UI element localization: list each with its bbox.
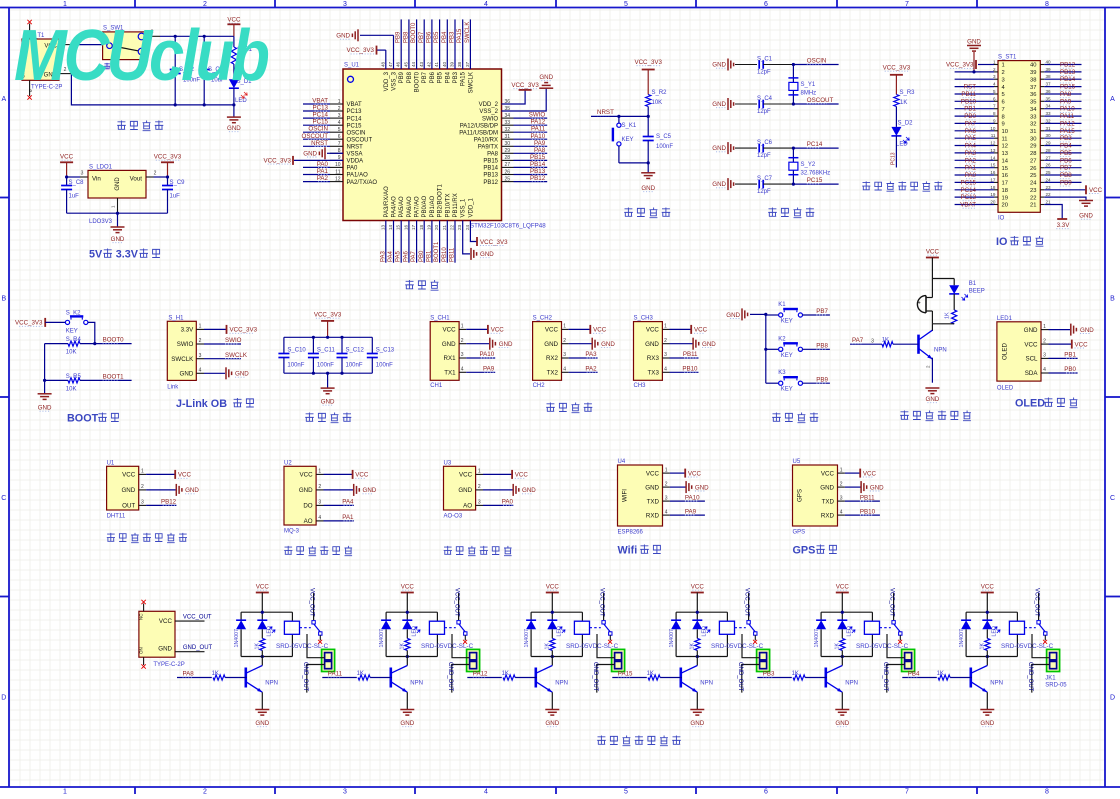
svg-text:S_Y2: S_Y2 [801, 162, 816, 168]
svg-text:32: 32 [1030, 122, 1036, 128]
svg-text:3.3V: 3.3V [116, 249, 139, 261]
svg-text:40: 40 [1030, 63, 1036, 69]
svg-text:46: 46 [396, 61, 401, 67]
svg-text:VCC_OUT: VCC_OUT [889, 588, 895, 617]
svg-text:1: 1 [478, 469, 481, 475]
svg-text:3: 3 [993, 74, 996, 79]
svg-text:22: 22 [450, 224, 455, 230]
svg-text:Wifi: Wifi [618, 545, 638, 557]
svg-text:PB7: PB7 [419, 31, 425, 43]
svg-text:40: 40 [442, 61, 447, 67]
svg-text:PA2: PA2 [965, 157, 977, 164]
svg-text:VCC_3V3: VCC_3V3 [263, 157, 291, 164]
svg-text:3: 3 [840, 495, 843, 501]
svg-text:1K: 1K [690, 643, 696, 650]
svg-text:NPN: NPN [700, 681, 713, 687]
svg-text:PB6: PB6 [430, 71, 436, 83]
svg-text:PB8: PB8 [407, 71, 413, 83]
svg-text:1K: 1K [400, 643, 406, 650]
svg-text:20: 20 [434, 224, 439, 230]
svg-text:5: 5 [624, 1, 628, 8]
svg-text:PA2: PA2 [585, 366, 597, 373]
svg-text:PB12: PB12 [1060, 62, 1076, 69]
svg-text:U1: U1 [107, 460, 115, 466]
svg-text:19: 19 [426, 224, 431, 230]
svg-text:PC14: PC14 [807, 141, 823, 148]
svg-text:6: 6 [764, 1, 768, 8]
svg-text:GND: GND [522, 487, 536, 494]
svg-text:PA12: PA12 [1060, 120, 1075, 127]
svg-text:S_R4: S_R4 [66, 337, 82, 343]
svg-text:30: 30 [1030, 136, 1036, 142]
svg-text:4: 4 [840, 509, 843, 515]
svg-text:32.768KHz: 32.768KHz [801, 170, 831, 176]
svg-text:PB12: PB12 [161, 499, 177, 506]
svg-text:VCC: VCC [443, 327, 457, 334]
svg-text:GND_OUT: GND_OUT [302, 662, 308, 692]
svg-text:3: 3 [1002, 77, 1005, 83]
svg-text:K2: K2 [778, 336, 786, 342]
svg-text:PA11: PA11 [531, 126, 546, 133]
svg-text:36: 36 [1030, 92, 1036, 98]
svg-text:SWCLK: SWCLK [225, 352, 248, 359]
svg-text:VCC_OUT: VCC_OUT [599, 588, 605, 617]
svg-text:PB13: PB13 [530, 168, 546, 175]
svg-text:3: 3 [199, 353, 202, 359]
svg-text:3: 3 [871, 338, 874, 344]
svg-text:3: 3 [343, 788, 347, 794]
svg-text:6: 6 [1002, 100, 1005, 106]
svg-text:42: 42 [426, 61, 431, 67]
svg-text:PC15: PC15 [961, 179, 977, 186]
svg-text:PA0: PA0 [502, 499, 514, 506]
svg-text:3: 3 [665, 495, 668, 501]
svg-text:PB5: PB5 [1060, 150, 1072, 157]
svg-text:PB7: PB7 [816, 308, 828, 315]
svg-text:GND: GND [1024, 327, 1038, 334]
svg-text:PA2/TX/AO: PA2/TX/AO [347, 180, 378, 186]
svg-text:PC15: PC15 [347, 123, 363, 129]
svg-text:VBAT: VBAT [312, 98, 328, 105]
svg-text:15: 15 [396, 224, 401, 230]
svg-text:PB8: PB8 [816, 343, 828, 350]
svg-text:GND: GND [726, 312, 740, 319]
svg-text:7: 7 [905, 788, 909, 794]
svg-text:PB9: PB9 [399, 71, 405, 83]
svg-text:41: 41 [434, 61, 439, 67]
svg-text:22: 22 [1046, 192, 1052, 197]
svg-text:S_K1: S_K1 [622, 123, 637, 129]
svg-text:PB12: PB12 [483, 180, 498, 186]
svg-text:VCC: VCC [694, 327, 708, 334]
svg-text:PB0/AO: PB0/AO [422, 195, 428, 217]
svg-text:VCC: VCC [491, 327, 505, 334]
svg-text:4: 4 [318, 515, 321, 521]
svg-text:PB14: PB14 [1060, 76, 1076, 83]
svg-text:4: 4 [664, 367, 667, 373]
svg-text:BEEP: BEEP [969, 289, 985, 295]
svg-text:PC13: PC13 [891, 152, 897, 165]
svg-text:1: 1 [563, 324, 566, 330]
svg-text:PA8: PA8 [183, 670, 195, 677]
svg-text:KEY: KEY [781, 353, 793, 359]
svg-text:10: 10 [990, 126, 996, 131]
svg-text:15: 15 [990, 163, 996, 168]
svg-text:33: 33 [1046, 111, 1052, 116]
svg-text:NC: NC [139, 613, 144, 620]
svg-text:PA1: PA1 [342, 514, 354, 521]
svg-text:PB9: PB9 [816, 376, 828, 383]
svg-text:SRD-05VDC-SL-C: SRD-05VDC-SL-C [711, 643, 764, 650]
svg-text:PB11: PB11 [961, 91, 976, 98]
svg-text:1N4007: 1N4007 [524, 629, 530, 648]
svg-text:AO: AO [304, 518, 313, 525]
svg-text:22: 22 [1030, 195, 1036, 201]
svg-text:PA3: PA3 [585, 351, 597, 358]
svg-text:ESP8266: ESP8266 [618, 530, 644, 536]
svg-text:13: 13 [1002, 151, 1008, 157]
svg-text:K3: K3 [778, 370, 786, 376]
svg-text:PC13: PC13 [313, 105, 329, 112]
svg-text:GND: GND [645, 341, 659, 348]
svg-text:PB10: PB10 [682, 366, 698, 373]
svg-text:7: 7 [905, 1, 909, 8]
svg-text:24: 24 [1046, 177, 1052, 182]
svg-text:SWIO: SWIO [177, 341, 194, 348]
svg-text:PA0: PA0 [347, 166, 359, 172]
svg-text:LED: LED [235, 98, 247, 104]
svg-text:IO: IO [996, 236, 1007, 248]
svg-text:S_C4: S_C4 [757, 96, 773, 102]
svg-text:7: 7 [993, 104, 996, 109]
svg-text:VCC: VCC [926, 249, 940, 256]
svg-text:PA0: PA0 [965, 172, 977, 179]
svg-text:PB15: PB15 [1060, 84, 1076, 91]
svg-text:PA9: PA9 [1060, 98, 1072, 105]
svg-text:3: 3 [81, 171, 84, 177]
svg-text:PA11: PA11 [1060, 113, 1075, 120]
svg-text:RX2: RX2 [546, 355, 559, 362]
svg-text:34: 34 [1030, 107, 1037, 113]
svg-text:VCC: VCC [122, 472, 136, 479]
svg-text:PB8: PB8 [403, 31, 409, 43]
svg-text:GND: GND [38, 405, 52, 412]
svg-text:1N4007: 1N4007 [669, 629, 675, 648]
svg-text:GND_OUT: GND_OUT [447, 662, 453, 692]
svg-text:PA9: PA9 [534, 140, 546, 147]
svg-text:PB2/BOOT1: PB2/BOOT1 [438, 183, 444, 217]
svg-text:2: 2 [203, 788, 207, 794]
svg-text:S_C9: S_C9 [170, 180, 186, 186]
svg-text:GND: GND [820, 484, 834, 491]
svg-text:2: 2 [1002, 70, 1005, 76]
svg-text:PB6: PB6 [426, 31, 432, 43]
svg-text:GND: GND [480, 251, 494, 258]
svg-text:4: 4 [563, 367, 566, 373]
svg-text:VSS_3: VSS_3 [392, 71, 398, 90]
svg-text:GND: GND [641, 185, 655, 192]
svg-text:BOOT1: BOOT1 [103, 373, 125, 380]
svg-text:VDD_2: VDD_2 [479, 102, 499, 108]
svg-text:PB0: PB0 [1064, 366, 1076, 373]
svg-text:SWIO: SWIO [225, 337, 242, 344]
svg-text:GND: GND [363, 487, 377, 494]
svg-text:VCC: VCC [863, 470, 877, 477]
svg-text:1: 1 [63, 788, 67, 794]
svg-text:RXD: RXD [821, 512, 835, 519]
svg-text:37: 37 [1046, 82, 1052, 87]
svg-text:C: C [1110, 495, 1115, 502]
svg-text:PB12: PB12 [530, 175, 546, 182]
svg-text:PA11: PA11 [328, 670, 343, 677]
svg-text:S_D2: S_D2 [898, 121, 914, 127]
svg-text:PA10: PA10 [531, 133, 546, 140]
svg-text:17: 17 [1002, 181, 1008, 187]
svg-text:PA9: PA9 [483, 366, 495, 373]
svg-text:Vout: Vout [130, 176, 143, 183]
svg-text:NRST: NRST [311, 140, 328, 147]
svg-text:VCC_OUT: VCC_OUT [183, 615, 212, 621]
svg-text:GND: GND [227, 125, 241, 132]
svg-text:GND: GND [539, 74, 553, 81]
svg-text:10K: 10K [652, 100, 663, 106]
svg-text:K1: K1 [778, 302, 786, 308]
svg-text:2: 2 [199, 338, 202, 344]
svg-text:GND: GND [185, 487, 199, 494]
svg-text:S_CH3: S_CH3 [634, 316, 654, 322]
svg-text:IO: IO [998, 216, 1005, 222]
svg-text:12: 12 [1002, 144, 1008, 150]
svg-text:PB14: PB14 [483, 166, 498, 172]
svg-text:VCC: VCC [545, 327, 559, 334]
svg-text:KEY: KEY [622, 137, 634, 143]
svg-text:PB4: PB4 [442, 31, 448, 43]
svg-text:PA15: PA15 [457, 28, 463, 43]
svg-text:VCC_3V3: VCC_3V3 [346, 47, 374, 54]
svg-text:SRD-05: SRD-05 [1045, 683, 1067, 689]
svg-text:NRST: NRST [347, 145, 364, 151]
svg-text:3: 3 [664, 352, 667, 358]
svg-text:NPN: NPN [410, 681, 423, 687]
svg-text:GND: GND [545, 720, 559, 727]
svg-text:8: 8 [1045, 788, 1049, 794]
svg-text:LED: LED [702, 626, 708, 636]
svg-text:14: 14 [990, 155, 996, 160]
svg-text:LDO3V3: LDO3V3 [89, 219, 113, 225]
svg-text:Vin: Vin [92, 176, 101, 183]
svg-text:VCC: VCC [981, 584, 995, 591]
svg-text:OLED: OLED [1015, 398, 1045, 410]
svg-text:VCC: VCC [821, 470, 835, 477]
svg-text:VCC_3V3: VCC_3V3 [230, 327, 258, 334]
svg-text:35: 35 [1046, 96, 1052, 101]
svg-text:DO: DO [303, 503, 312, 510]
svg-text:CH2: CH2 [533, 383, 546, 389]
svg-text:2: 2 [318, 484, 321, 490]
svg-text:5: 5 [624, 788, 628, 794]
svg-text:VCC_OUT: VCC_OUT [744, 588, 750, 617]
svg-text:OSCIN: OSCIN [347, 130, 366, 136]
svg-text:PB0: PB0 [419, 250, 425, 262]
svg-text:4: 4 [1043, 367, 1046, 373]
svg-text:TYPE-C-2P: TYPE-C-2P [153, 662, 184, 668]
svg-text:SWIO: SWIO [482, 116, 498, 122]
svg-text:S_LDO1: S_LDO1 [89, 165, 113, 171]
svg-text:PA4: PA4 [388, 250, 394, 262]
svg-text:24: 24 [465, 224, 470, 230]
svg-text:OLED: OLED [997, 386, 1014, 392]
svg-text:28: 28 [1030, 151, 1036, 157]
svg-text:27: 27 [1030, 159, 1036, 165]
svg-text:9: 9 [1002, 122, 1005, 128]
svg-text:34: 34 [1046, 104, 1052, 109]
svg-text:2: 2 [563, 338, 566, 344]
svg-text:NPN: NPN [934, 348, 947, 354]
svg-text:OSCIN: OSCIN [308, 126, 328, 133]
svg-text:38: 38 [457, 61, 462, 67]
svg-text:PA8: PA8 [487, 152, 499, 158]
svg-text:38: 38 [1046, 74, 1052, 79]
svg-text:3: 3 [318, 500, 321, 506]
svg-text:LED1: LED1 [997, 316, 1013, 322]
svg-text:GND: GND [544, 341, 558, 348]
svg-text:VDD_1: VDD_1 [468, 197, 474, 217]
svg-text:TXD: TXD [822, 498, 835, 505]
svg-text:PA6: PA6 [965, 128, 977, 135]
svg-text:27: 27 [1046, 155, 1052, 160]
svg-text:4: 4 [665, 509, 668, 515]
svg-text:GND_OUT: GND_OUT [592, 662, 598, 692]
svg-text:KEY: KEY [781, 387, 793, 393]
svg-text:12pF: 12pF [757, 69, 771, 75]
svg-text:GND_OUT: GND_OUT [737, 662, 743, 692]
svg-text:40: 40 [1046, 60, 1052, 65]
svg-text:OSCOUT: OSCOUT [302, 133, 329, 140]
svg-text:SRD-05VDC-SL-C: SRD-05VDC-SL-C [1001, 643, 1054, 650]
svg-text:6: 6 [764, 788, 768, 794]
svg-text:VSSA: VSSA [347, 152, 363, 158]
svg-text:PA4: PA4 [342, 499, 354, 506]
svg-text:VCC_OUT: VCC_OUT [309, 588, 315, 617]
svg-text:B1: B1 [969, 281, 977, 287]
svg-text:12pF: 12pF [757, 153, 771, 159]
svg-text:5: 5 [1002, 92, 1005, 98]
svg-text:13: 13 [990, 148, 996, 153]
svg-text:STM32F103C8T6_LQFP48: STM32F103C8T6_LQFP48 [470, 223, 546, 230]
svg-text:44: 44 [411, 61, 416, 67]
svg-text:4: 4 [199, 368, 202, 374]
svg-text:A: A [1110, 96, 1115, 103]
svg-text:GND: GND [1080, 327, 1094, 334]
svg-text:PB1: PB1 [1064, 352, 1076, 359]
svg-text:GND: GND [111, 236, 125, 243]
svg-text:2: 2 [461, 338, 464, 344]
svg-text:S_C7: S_C7 [757, 176, 773, 182]
svg-text:4: 4 [484, 1, 488, 8]
svg-text:3: 3 [478, 500, 481, 506]
svg-text:14: 14 [388, 224, 393, 230]
svg-text:1: 1 [318, 469, 321, 475]
svg-text:16: 16 [1002, 173, 1008, 179]
svg-text:B: B [1110, 296, 1115, 303]
svg-text:PA15: PA15 [461, 71, 467, 86]
svg-text:PB5: PB5 [434, 31, 440, 43]
svg-text:PC14: PC14 [961, 187, 977, 194]
svg-text:PA5: PA5 [396, 250, 402, 262]
svg-text:1: 1 [665, 467, 668, 473]
svg-text:VDD_3: VDD_3 [384, 71, 390, 91]
svg-text:SWCLK: SWCLK [171, 356, 194, 363]
svg-text:37: 37 [465, 61, 470, 67]
svg-text:3: 3 [563, 352, 566, 358]
svg-text:B: B [1, 296, 6, 303]
svg-text:PC13: PC13 [347, 109, 363, 115]
svg-text:10K: 10K [66, 350, 77, 356]
svg-text:31: 31 [1046, 126, 1052, 131]
svg-text:A: A [1, 96, 6, 103]
svg-text:39: 39 [1030, 70, 1036, 76]
svg-text:1N4007: 1N4007 [379, 629, 385, 648]
svg-text:GND: GND [712, 62, 726, 69]
svg-text:VCC: VCC [300, 472, 314, 479]
svg-text:30: 30 [1046, 133, 1052, 138]
svg-text:PB4: PB4 [908, 670, 920, 677]
svg-text:PA12: PA12 [531, 119, 546, 126]
svg-text:SRD-05VDC-SL-C: SRD-05VDC-SL-C [566, 643, 619, 650]
svg-text:PB1: PB1 [426, 250, 432, 262]
svg-text:U2: U2 [284, 460, 292, 466]
svg-text:MCUclub: MCUclub [14, 16, 269, 96]
svg-text:D: D [1, 695, 6, 702]
svg-text:VCC_3V3: VCC_3V3 [480, 239, 508, 246]
svg-text:S_C11: S_C11 [317, 348, 336, 354]
svg-text:29: 29 [1046, 141, 1052, 146]
svg-text:1uF: 1uF [69, 194, 80, 200]
svg-text:1uF: 1uF [170, 194, 181, 200]
svg-text:GND: GND [1079, 213, 1093, 220]
svg-text:RX3: RX3 [647, 355, 660, 362]
svg-text:2: 2 [840, 481, 843, 487]
svg-text:GND: GND [336, 33, 350, 40]
svg-text:GND: GND [980, 720, 994, 727]
svg-text:1: 1 [664, 324, 667, 330]
svg-text:GND: GND [499, 341, 513, 348]
svg-text:GND: GND [695, 484, 709, 491]
svg-text:PA6/AO: PA6/AO [407, 196, 413, 218]
svg-text:VCC_OUT: VCC_OUT [454, 588, 460, 617]
svg-text:VCC: VCC [1075, 341, 1089, 348]
svg-text:47: 47 [388, 61, 393, 67]
svg-text:1: 1 [993, 60, 996, 65]
svg-text:VCC_3V3: VCC_3V3 [511, 82, 539, 89]
svg-text:1: 1 [63, 1, 67, 8]
svg-text:SRD-05VDC-SL-C: SRD-05VDC-SL-C [276, 643, 329, 650]
svg-text:1: 1 [1043, 324, 1046, 330]
svg-text:PB10: PB10 [961, 98, 977, 105]
svg-text:LED: LED [992, 626, 998, 636]
svg-text:VCC: VCC [60, 154, 74, 161]
svg-text:LED: LED [267, 626, 273, 636]
svg-text:25: 25 [1030, 173, 1036, 179]
svg-text:GND: GND [442, 341, 456, 348]
svg-text:GND: GND [458, 487, 472, 494]
svg-text:VCC_3V3: VCC_3V3 [15, 320, 43, 327]
svg-text:VCC_OUT: VCC_OUT [1034, 588, 1040, 617]
svg-text:TX1: TX1 [444, 370, 456, 377]
svg-text:+: + [918, 301, 921, 307]
svg-text:TX3: TX3 [648, 370, 660, 377]
svg-text:OSCOUT: OSCOUT [807, 97, 834, 104]
